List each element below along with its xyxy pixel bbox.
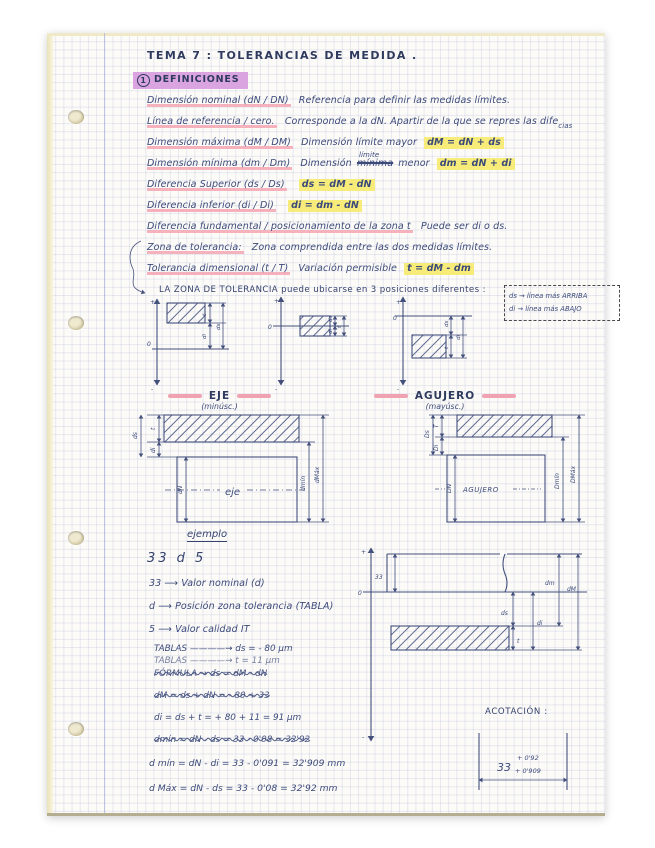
notebook-page: TEMA 7 : TOLERANCIAS DE MEDIDA . 1DEFINI… <box>47 33 605 816</box>
axis-plus-label: + <box>150 299 155 306</box>
eje-body-label: eje <box>225 487 240 498</box>
dim-t-label: t <box>517 638 520 645</box>
definition-suffix: cias <box>558 122 572 130</box>
formula-highlight: t = dM - dm <box>404 263 474 275</box>
corrected-word: límitemínima <box>357 158 393 169</box>
nominal-33-label: 33 <box>375 574 383 581</box>
agujero-header: AGUJERO <box>365 390 525 402</box>
dim-di-label: di <box>456 335 462 340</box>
calc-line-struck: FÓRMULA → ds = dM - dN <box>154 669 267 679</box>
definition-text: Zona comprendida entre las dos medidas l… <box>252 242 492 253</box>
tolerance-zone <box>300 316 330 336</box>
pink-dash <box>374 394 408 398</box>
punch-hole <box>68 316 84 330</box>
dim-di-label: di <box>537 620 543 627</box>
axis-zero-label: 0 <box>268 324 272 331</box>
axis-zero-label: 0 <box>358 590 362 597</box>
tolerance-zone <box>391 626 509 650</box>
axis-plus-label: + <box>396 299 401 306</box>
formula-highlight: di = dm - dN <box>288 200 362 212</box>
calc-line-struck: dmín = dN - ds = 33 - 0'08 = 32'92 <box>154 735 310 745</box>
definition-text: menor <box>398 158 429 169</box>
note-box-line2: di → línea más ABAJO <box>509 303 615 316</box>
eje-title: EJE <box>209 390 230 402</box>
calc-line: d mín = dN - di = 33 - 0'091 = 32'909 mm <box>149 758 345 769</box>
definition-line: Dimensión nominal (dN / DN) Referencia p… <box>147 95 510 106</box>
calc-line: d Máx = dN - ds = 33 - 0'08 = 32'92 mm <box>149 783 337 794</box>
axis-zero-label: 0 <box>147 341 151 348</box>
punch-hole <box>68 722 84 736</box>
pink-dash <box>482 394 516 398</box>
punch-hole <box>68 531 84 545</box>
definition-text: Variación permisible <box>298 263 397 274</box>
eje-ds-label: ds <box>132 432 139 439</box>
acotacion-diagram: 33 + 0'92 + 0'909 <box>467 728 582 798</box>
eje-dN-label: dN <box>177 485 184 494</box>
definition-term: Diferencia inferior (di / Di) <box>147 200 276 212</box>
section-number: 1 <box>137 74 150 87</box>
definition-term: Línea de referencia / cero. <box>147 116 277 128</box>
note-box: ds → línea más ARRIBA di → línea más ABA… <box>504 285 620 321</box>
tolerance-zone <box>164 415 299 442</box>
pink-dash <box>168 394 202 398</box>
definition-term: Tolerancia dimensional (t / T) <box>147 263 290 275</box>
tolerance-zone <box>457 415 552 437</box>
page-top-edge <box>47 33 605 36</box>
agujero-T-label: T <box>433 423 440 428</box>
agujero-Dmax-label: DMáx <box>570 466 577 483</box>
eje-t-label: t <box>150 427 157 430</box>
dim-di-label: di <box>202 334 208 339</box>
agujero-Ds-label: Ds <box>424 430 431 438</box>
axis-plus-label: + <box>274 298 279 305</box>
agujero-diagram: AGUJERO Ds T Di DN Dmín DMáx <box>427 411 602 529</box>
acotacion-sup: + 0'92 <box>517 754 539 762</box>
eje-subtitle: (minúsc.) <box>157 402 282 411</box>
agujero-body-label: AGUJERO <box>462 486 499 494</box>
agujero-DN-label: DN <box>446 483 453 493</box>
eje-header: EJE <box>157 390 282 402</box>
definition-line: Dimensión máxima (dM / DM) Dimensión lím… <box>147 137 504 148</box>
dim-dm-label: dm <box>545 580 555 587</box>
axis-plus-label: + <box>361 549 366 556</box>
pink-dash <box>237 394 271 398</box>
dim-dM-label: dM <box>567 586 577 593</box>
definition-term: Zona de tolerancia: <box>147 242 244 254</box>
calc-line-struck: dM = ds + dN = - 80 + 33 <box>154 691 270 701</box>
eje-dmax-label: dMáx <box>314 466 321 483</box>
example-bullet: d ⟶ Posición zona tolerancia (TABLA) <box>149 601 333 612</box>
dim-ds-label: ds <box>328 316 334 322</box>
definition-term: Dimensión máxima (dM / DM) <box>147 137 293 149</box>
acotacion-label: ACOTACIÓN : <box>485 707 548 717</box>
screenshot-root: { "page": { "title": "TEMA 7 : TOLERANCI… <box>0 0 655 848</box>
example-code: 33 d 5 <box>147 551 206 566</box>
agujero-Dmin-label: Dmín <box>554 473 561 489</box>
dim-ds-label: ds <box>444 321 450 327</box>
formula-highlight: dM = dN + ds <box>424 137 504 149</box>
page-left-edge <box>47 33 54 813</box>
acotacion-base: 33 <box>497 761 511 774</box>
calc-line: di = ds + t = + 80 + 11 = 91 μm <box>154 713 301 723</box>
example-bullet: 5 ⟶ Valor calidad IT <box>149 624 250 635</box>
definition-line: Dimensión mínima (dm / Dm) Dimensión lím… <box>147 158 515 169</box>
example-bullet: 33 ⟶ Valor nominal (d) <box>149 578 265 589</box>
definition-line: Línea de referencia / cero. Corresponde … <box>147 116 572 130</box>
definition-term: Diferencia Superior (ds / Ds) <box>147 179 287 191</box>
definition-line: Zona de tolerancia: Zona comprendida ent… <box>147 242 492 253</box>
definition-text: Referencia para definir las medidas lími… <box>299 95 510 106</box>
note-box-line1: ds → línea más ARRIBA <box>509 290 615 303</box>
acotacion-sub: + 0'909 <box>515 767 541 775</box>
definition-text: Dimensión <box>300 158 351 169</box>
definition-text: Corresponde a la dN. Apartir de la que s… <box>285 116 558 127</box>
example-diagram: + 0 - 33 ds t di dm dM <box>355 541 605 746</box>
definition-line: Diferencia fundamental / posicionamiento… <box>147 221 507 232</box>
calc-line: TABLAS ————→ t = 11 μm <box>154 656 280 666</box>
definition-line: Tolerancia dimensional (t / T) Variación… <box>147 263 474 274</box>
dim-ds-label: ds <box>501 610 508 617</box>
definition-text: Dimensión límite mayor <box>301 137 417 148</box>
punch-hole <box>68 110 84 124</box>
agujero-Di-label: Di <box>433 444 440 451</box>
calc-line: TABLAS ————→ ds = - 80 μm <box>154 644 293 654</box>
axis-minus-label: - <box>362 734 364 741</box>
agujero-subtitle: (mayúsc.) <box>365 402 525 411</box>
brace-arrow <box>119 239 155 297</box>
axis-minus-label: - <box>151 386 153 393</box>
example-heading: ejemplo <box>187 529 227 542</box>
definition-term: Diferencia fundamental / posicionamiento… <box>147 221 413 233</box>
eje-dmin-label: dmín <box>300 476 307 491</box>
tolerance-positions-diagram: + 0 - t di ds + 0 - ds di t + 0 - <box>147 293 487 393</box>
definition-line: Diferencia Superior (ds / Ds) ds = dM - … <box>147 179 375 190</box>
struck-word: mínima <box>357 158 393 169</box>
tolerance-zone <box>167 303 205 323</box>
section-heading: 1DEFINICIONES <box>133 72 248 89</box>
tolerance-zone <box>412 335 446 358</box>
dim-di-label: di <box>328 329 334 334</box>
dim-ds-label: ds <box>216 324 222 330</box>
eje-diagram: eje ds t di dN dmín dMáx <box>135 411 335 529</box>
definition-term: Dimensión nominal (dN / DN) <box>147 95 291 107</box>
eje-di-label: di <box>150 447 157 453</box>
page-title: TEMA 7 : TOLERANCIAS DE MEDIDA . <box>147 49 418 62</box>
formula-highlight: dm = dN + di <box>437 158 515 170</box>
agujero-title: AGUJERO <box>415 390 475 402</box>
margin-line <box>104 33 105 813</box>
formula-highlight: ds = dM - dN <box>299 179 375 191</box>
definition-text: Puede ser di o ds. <box>421 221 508 232</box>
section-title: DEFINICIONES <box>154 74 239 85</box>
correction-above: límite <box>359 151 379 159</box>
definition-line: Diferencia inferior (di / Di) di = dm - … <box>147 200 362 211</box>
definition-term: Dimensión mínima (dm / Dm) <box>147 158 292 170</box>
